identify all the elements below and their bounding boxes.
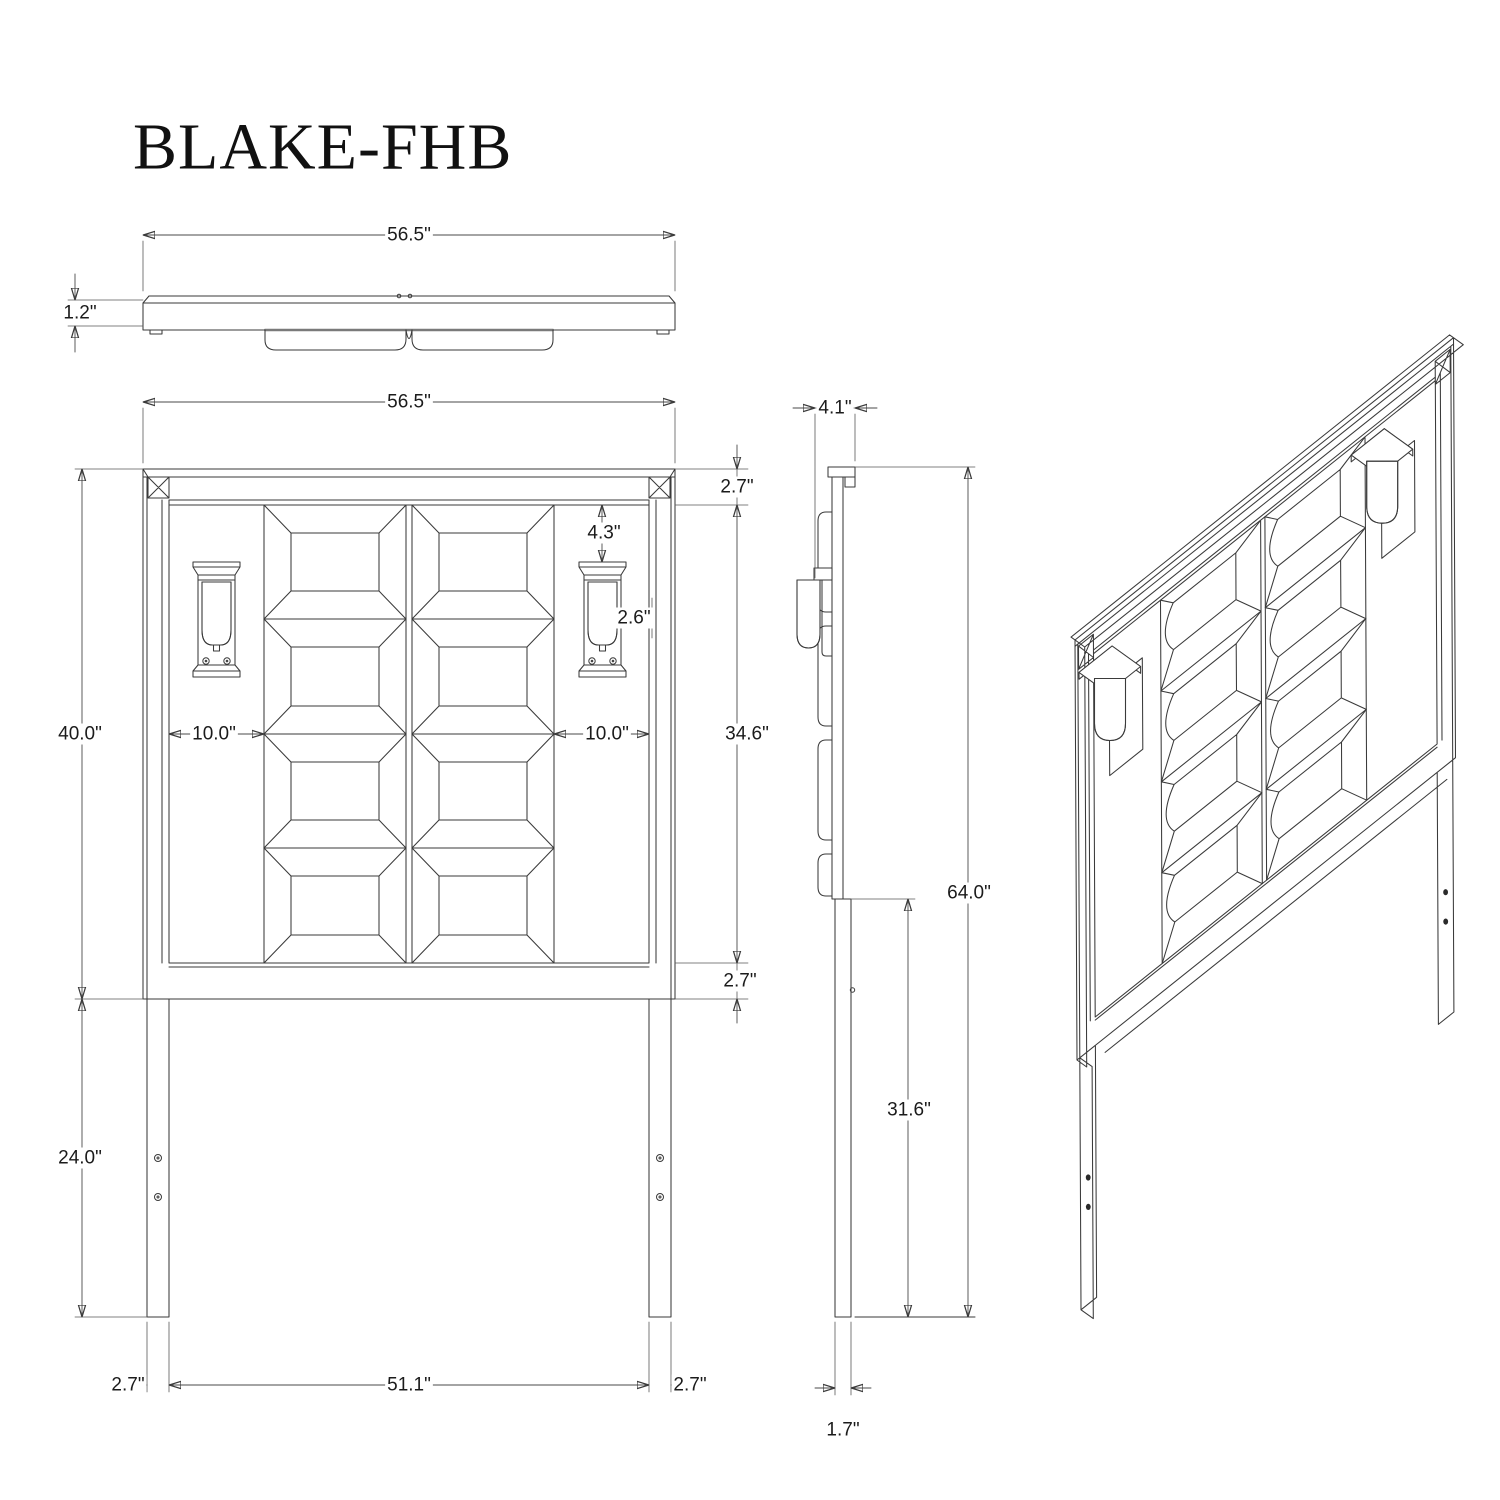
dim-leg-thickness-label: 1.7" [826,1420,859,1441]
dim-top-width-label: 56.5" [387,225,431,246]
dim-upper-leg-label: 31.6" [887,1100,931,1121]
dim-panel-field-label: 34.6" [725,724,769,745]
dim-depth-label: 4.1" [818,398,851,419]
drawing-page: BLAKE-FHB [0,0,1500,1500]
dim-top-rail-label: 2.7" [720,477,753,498]
dim-lamp-offset-label: 4.3" [587,523,620,544]
dim-total-height-label: 64.0" [947,883,991,904]
dim-left-leg-width-label: 2.7" [111,1375,144,1396]
label-backgrounds [56,225,993,1396]
dim-right-leg-width-label: 2.7" [673,1375,706,1396]
dim-right-inset-label: 10.0" [585,724,629,745]
top-view-slab [143,296,675,334]
dim-left-inset-label: 10.0" [192,724,236,745]
title-block: BLAKE-FHB [133,111,512,184]
dim-front-width-label: 56.5" [387,392,431,413]
isometric-view [1071,335,1463,1319]
side-view-bumps-and-lamp [797,512,832,896]
drawing-title: BLAKE-FHB [133,111,512,184]
dim-inner-span-label: 51.1" [387,1375,431,1396]
top-view [143,294,675,350]
front-view [143,469,675,1317]
dim-bottom-rail-label: 2.7" [723,971,756,992]
dim-board-height-label: 40.0" [58,724,102,745]
dim-lamp-width-label: 2.6" [617,608,650,629]
dim-leg-length-label: 24.0" [58,1148,102,1169]
dim-top-thickness-label: 1.2" [63,303,96,324]
blake-fhb-technical-drawing: BLAKE-FHB [0,0,1500,1500]
front-view-panels-and-lamps [155,505,664,1201]
top-view-panel-bumps [265,330,553,350]
